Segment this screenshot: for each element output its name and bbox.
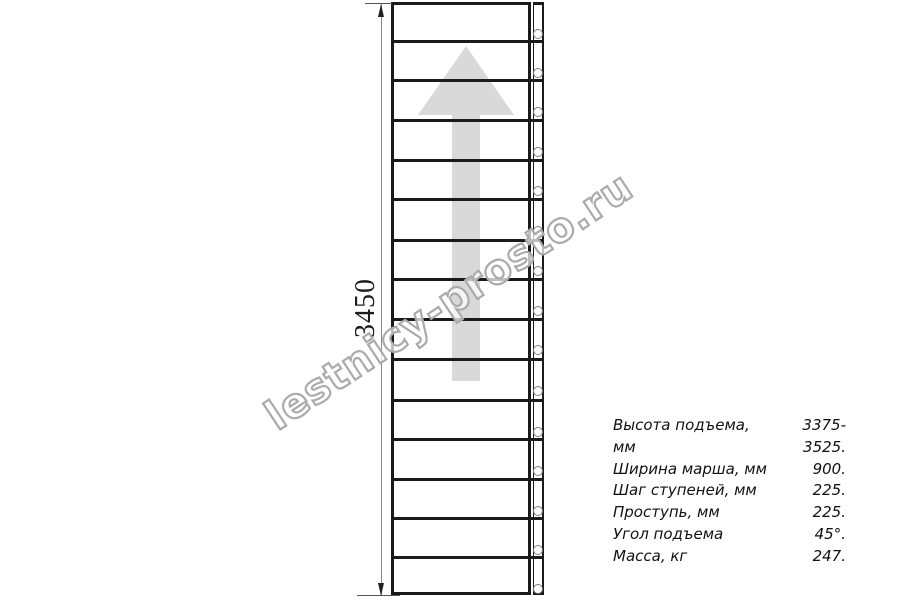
tread-line: [391, 79, 544, 82]
spec-row: Ширина марша, мм900.: [613, 459, 846, 481]
stringer-hole-icon: [533, 147, 543, 157]
stringer-hole-icon: [533, 345, 543, 355]
tread-line: [391, 517, 544, 520]
stringer-hole-icon: [533, 466, 543, 476]
tread-line: [391, 358, 544, 361]
spec-label: Высота подъема, мм: [613, 415, 766, 459]
stringer-hole-icon: [533, 506, 543, 516]
tread-line: [391, 399, 544, 402]
spec-label: Шаг ступеней, мм: [613, 480, 757, 502]
dimension-extension-top: [365, 3, 392, 4]
tread-line: [391, 198, 544, 201]
tread-line: [391, 556, 544, 559]
spec-row: Шаг ступеней, мм225.: [613, 480, 846, 502]
spec-value: 225.: [813, 480, 846, 502]
spec-value: 45°.: [815, 524, 846, 546]
spec-label: Угол подъема: [613, 524, 723, 546]
dimension-arrow-up-icon: [378, 4, 384, 17]
stringer-hole-icon: [533, 545, 543, 555]
stringer-hole-icon: [533, 306, 543, 316]
spec-label: Проступь, мм: [613, 502, 720, 524]
stringer-hole-icon: [533, 186, 543, 196]
tread-line: [391, 159, 544, 162]
spec-row: Масса, кг247.: [613, 546, 846, 568]
stringer-hole-icon: [533, 427, 543, 437]
spec-row: Высота подъема, мм3375-3525.: [613, 415, 846, 459]
spec-label: Масса, кг: [613, 546, 687, 568]
tread-line: [391, 119, 544, 122]
tread-line: [391, 40, 544, 43]
spec-value: 900.: [813, 459, 846, 481]
tread-line: [391, 438, 544, 441]
spec-row: Угол подъема45°.: [613, 524, 846, 546]
stringer-hole-icon: [533, 584, 543, 594]
spec-value: 247.: [813, 546, 846, 568]
stringer-hole-icon: [533, 386, 543, 396]
stringer-hole-icon: [533, 68, 543, 78]
tread-line: [391, 478, 544, 481]
stringer-hole-icon: [533, 29, 543, 39]
stair-plan-drawing: 3450 Высота подъема, мм3375-3525.Ширина …: [0, 0, 900, 600]
spec-label: Ширина марша, мм: [613, 459, 767, 481]
spec-value: 3375-3525.: [766, 415, 846, 459]
dimension-extension-bottom: [357, 595, 400, 596]
spec-row: Проступь, мм225.: [613, 502, 846, 524]
stringer-hole-icon: [533, 107, 543, 117]
spec-table: Высота подъема, мм3375-3525.Ширина марша…: [613, 415, 846, 568]
spec-value: 225.: [813, 502, 846, 524]
